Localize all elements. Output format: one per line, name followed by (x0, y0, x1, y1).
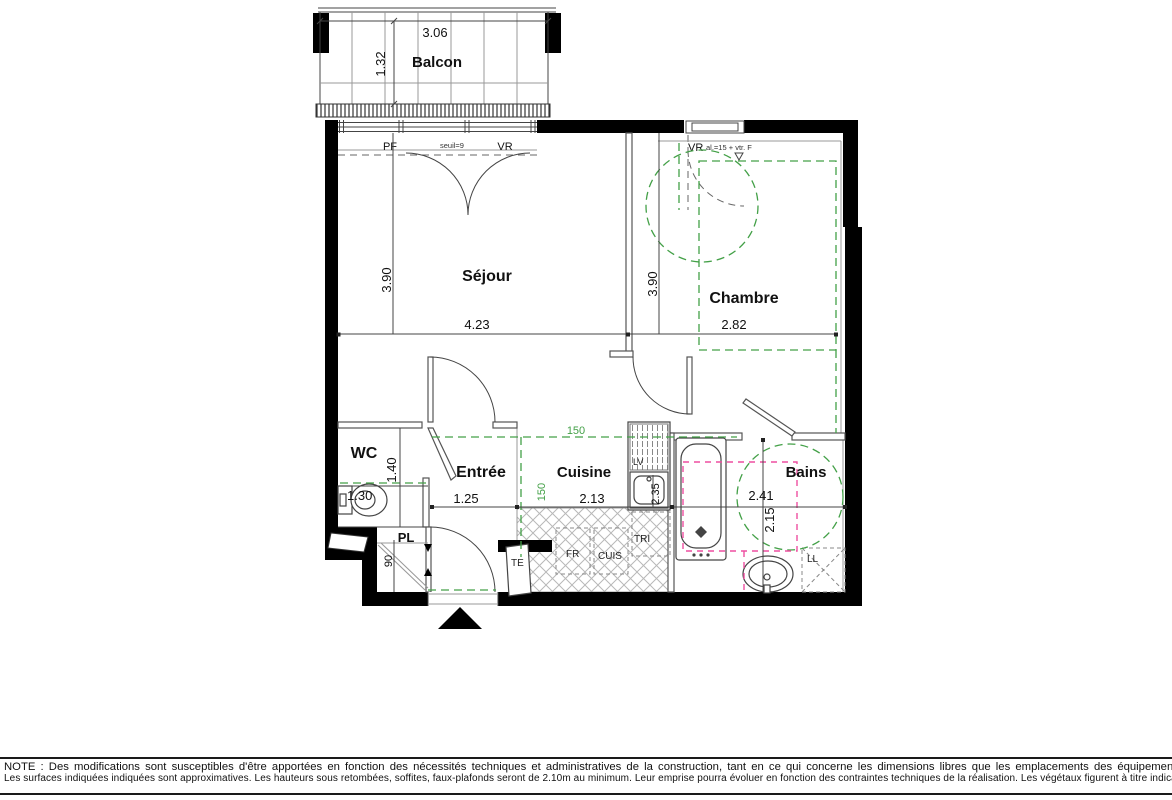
window-label-seuil: seuil=9 (440, 141, 464, 150)
room-label-wc: WC (351, 445, 378, 462)
room-label-sejour: Séjour (462, 268, 512, 285)
dim-placard-depth: 90 (383, 555, 395, 567)
door-leaf-wc (428, 428, 456, 480)
note-line-1: NOTE : Des modifications sont susceptibl… (4, 761, 1168, 773)
entrance-arrow (438, 607, 482, 629)
washbasin (743, 556, 793, 593)
label-fr: FR (566, 549, 579, 560)
balcony-window-assembly: PF seuil=9 VR (338, 120, 537, 215)
door-leaf-bains (743, 399, 795, 436)
room-label-bains: Bains (786, 464, 827, 481)
window-label-vr: VR (497, 141, 512, 153)
dim-balcon-depth: 1.32 (373, 51, 388, 76)
wall-wc (423, 478, 429, 527)
dim-bains-width: 2.41 (748, 488, 773, 503)
dim-cuisine-depth: 2.35 (650, 483, 662, 504)
wall-bains-north-right (792, 433, 845, 440)
wall-sejour-chambre (626, 133, 632, 352)
label-lv: LV (633, 457, 643, 467)
dim-balcon-width: 3.06 (422, 25, 447, 40)
room-label-entree: Entrée (456, 464, 506, 481)
label-ll: LL (807, 554, 819, 565)
dim-chambre-width: 2.82 (721, 317, 746, 332)
french-door-leaf-left (406, 153, 468, 215)
floorplan-drawing: PF seuil=9 VR VR al.=15 + vtr. F (0, 0, 1172, 800)
door-swing-entrance (430, 527, 495, 592)
room-label-placard: PL (398, 530, 415, 545)
dim-sejour-width: 4.23 (464, 317, 489, 332)
dim-bains-depth: 2.15 (762, 507, 777, 532)
chambre-window-label-vr: VR (688, 142, 703, 154)
door-swing-sejour (430, 357, 495, 422)
window-marker (735, 153, 743, 160)
window-label-pf: PF (383, 141, 397, 153)
label-te: TE (511, 558, 524, 569)
door-swing-chambre (633, 357, 690, 414)
room-label-cuisine: Cuisine (557, 464, 611, 481)
radiator (328, 533, 368, 552)
wall-placard (426, 527, 431, 592)
label-cuis: CUIS (598, 551, 622, 562)
room-label-balcon: Balcon (412, 54, 462, 71)
note-block: NOTE : Des modifications sont susceptibl… (0, 757, 1172, 795)
door-leaf-chambre (687, 357, 692, 414)
wall-sejour-entree-left (338, 422, 422, 428)
dim-wc-width: 1.30 (347, 488, 372, 503)
dim-cuisine-width: 2.13 (579, 491, 604, 506)
chambre-window-assembly: VR al.=15 + vtr. F (686, 121, 752, 210)
electrical-panel (506, 544, 531, 596)
note-line-2: Les surfaces indiquées indiquées sont ap… (4, 773, 1168, 784)
clearance-horizontal: 150 (567, 425, 585, 437)
balcony-pillar-left (313, 13, 329, 53)
dim-sejour-depth: 3.90 (379, 267, 394, 292)
balcony-railing (316, 104, 550, 117)
french-door-leaf-right (468, 153, 530, 215)
label-tri: TRI (634, 534, 650, 545)
room-label-chambre: Chambre (709, 290, 778, 307)
dim-chambre-depth: 3.90 (645, 271, 660, 296)
door-leaf-sejour (428, 357, 433, 422)
balcony-pillar-right (545, 13, 561, 53)
floorplan-page: PF seuil=9 VR VR al.=15 + vtr. F (0, 0, 1172, 800)
wall-sejour-entree-right (493, 422, 517, 428)
dim-wc-depth: 1.40 (384, 457, 399, 482)
clearance-vertical: 150 (536, 483, 548, 501)
dim-entree-width: 1.25 (453, 491, 478, 506)
